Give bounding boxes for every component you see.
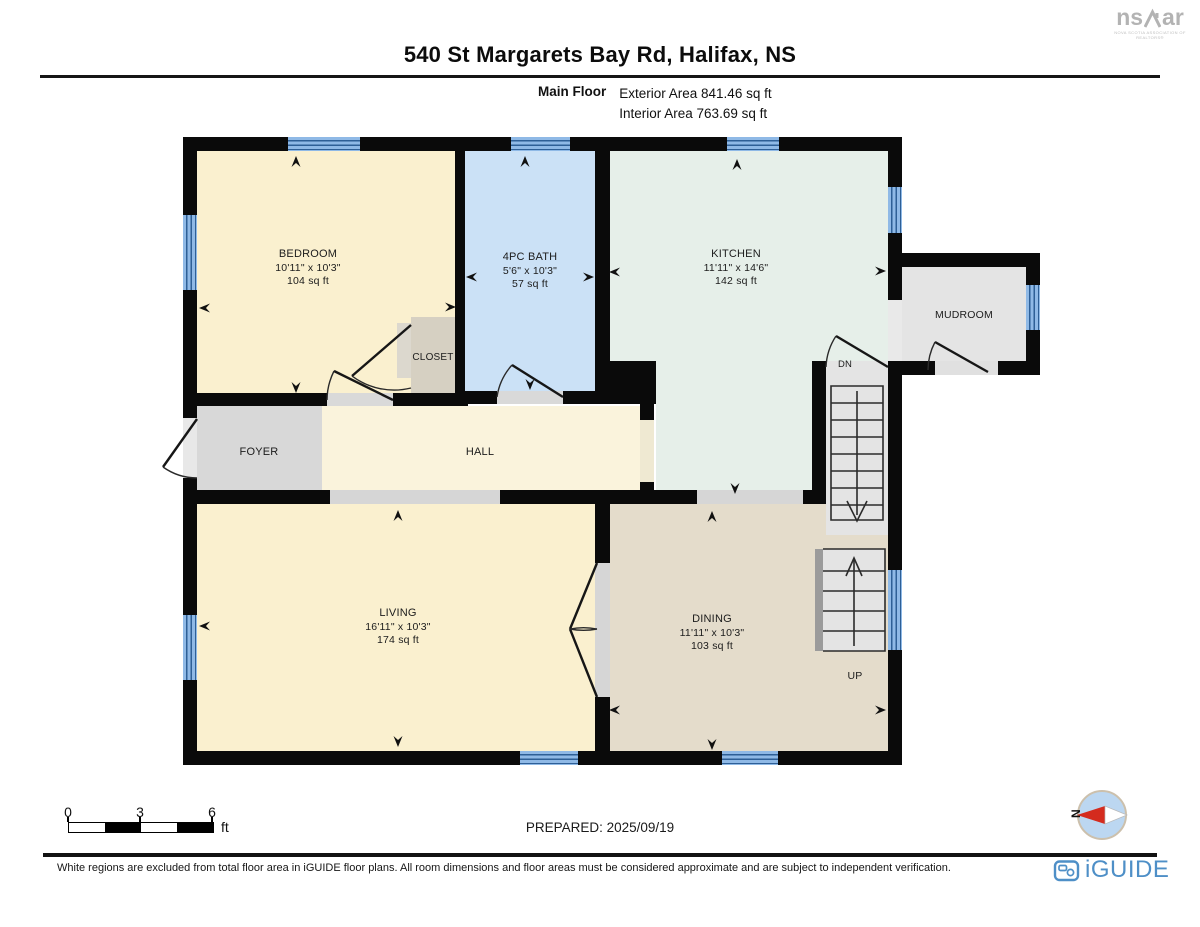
wall [183,490,330,504]
room-kitchen [656,361,812,490]
compass-north-label: N [1069,809,1083,818]
label-bath: 4PC BATH 5'6" x 10'3" 57 sq ft [430,251,630,292]
title-divider [40,75,1160,78]
door-opening [697,490,803,504]
wall [998,361,1040,375]
label-foyer: FOYER [209,446,309,460]
stairs-down-floor [826,361,888,535]
iguide-camera-icon [1053,857,1080,884]
window [722,751,778,765]
wall [455,391,497,404]
wall [183,393,327,406]
label-hall: HALL [430,446,530,460]
window [888,570,902,650]
wall [888,361,902,765]
label-closet: CLOSET [403,351,463,365]
interior-area: Interior Area 763.69 sq ft [619,104,771,124]
nsar-suffix: ar [1162,6,1184,28]
hall-kitchen-opening [640,420,654,482]
label-dining: DINING 11'11" x 10'3" 103 sq ft [612,613,812,654]
label-living: LIVING 16'11" x 10'3" 174 sq ft [298,607,498,648]
door-opening [330,490,500,504]
nsar-caption: NOVA SCOTIA ASSOCIATION OF REALTORS® [1110,30,1190,40]
window [888,187,902,233]
label-stairs-down: DN [827,358,863,372]
window [511,137,570,151]
house-caret-icon [1144,8,1161,28]
label-stairs-up: UP [837,670,873,684]
wall [563,391,610,404]
floor-label: Main Floor [538,84,606,124]
window [183,215,197,290]
window [520,751,578,765]
floor-info: Main Floor Exterior Area 841.46 sq ft In… [538,84,772,124]
wall [640,390,654,420]
nsar-prefix: ns [1116,6,1143,28]
iguide-brand-text: iGUIDE [1085,856,1169,884]
iguide-logo: iGUIDE [1053,856,1169,884]
stairs-up-floor [823,549,885,651]
wall [595,504,610,563]
window [288,137,360,151]
label-mudroom: MUDROOM [904,309,1024,323]
entry-door-opening [183,418,197,478]
wall [595,697,610,751]
label-kitchen: KITCHEN 11'11" x 14'6" 142 sq ft [636,248,836,289]
door-opening [327,393,393,406]
nsar-logo: ns ar NOVA SCOTIA ASSOCIATION OF REALTOR… [1110,6,1190,40]
compass: N [1068,784,1132,848]
floorplan-page: 540 St Margarets Bay Rd, Halifax, NS ns … [0,0,1200,927]
door-opening [935,361,998,375]
wall [500,490,697,504]
window [1026,285,1040,330]
window [727,137,779,151]
page-title: 540 St Margarets Bay Rd, Halifax, NS [0,42,1200,68]
label-bedroom: BEDROOM 10'11" x 10'3" 104 sq ft [208,248,408,289]
door-opening [595,563,610,697]
wall [902,253,1040,267]
exterior-area: Exterior Area 841.46 sq ft [619,84,771,104]
prepared-date: PREPARED: 2025/09/19 [0,820,1200,835]
door-opening [497,391,563,404]
footer-divider [43,853,1157,857]
window [183,615,197,680]
disclaimer-text: White regions are excluded from total fl… [57,862,967,874]
nsar-wordmark: ns ar [1110,6,1190,28]
mudroom-opening [888,300,902,361]
stairs-up-stringer [815,549,823,651]
wall [902,361,935,375]
